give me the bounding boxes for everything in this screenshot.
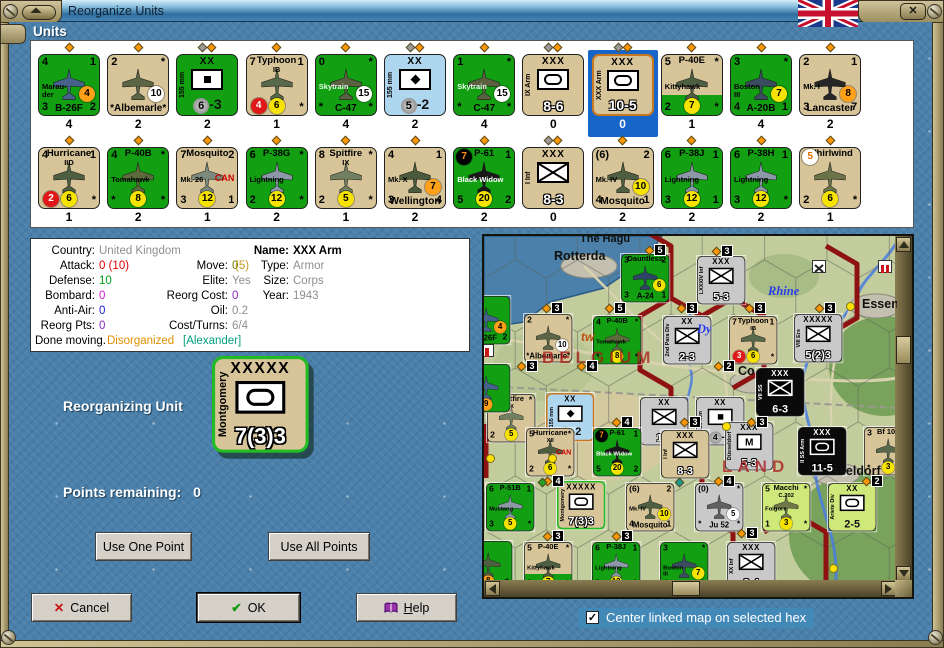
unit-counter-whirlwind[interactable]: 5Whirlwind62*: [799, 147, 861, 209]
name-value: XXX Arm: [293, 245, 342, 258]
unit-size-symbol: XXX: [523, 57, 583, 67]
unit-counter-typhoon[interactable]: 71TyphoonIB46*: [246, 54, 308, 116]
stat-top-right: *: [529, 396, 532, 405]
status-dots: [382, 137, 448, 144]
ok-label: OK: [248, 601, 266, 615]
unit-counter-p-38j[interactable]: 61P-38JLightning1231: [661, 147, 723, 209]
strength-circle: 10: [556, 339, 568, 351]
unit-nickname: Black Widow: [457, 176, 503, 184]
window-menu-button[interactable]: [22, 5, 56, 20]
unit-size-symbol: XX: [664, 318, 711, 326]
stat-bottom-left: 1: [765, 520, 770, 529]
unit-reorg-count: 1: [313, 210, 379, 224]
unit-reorg-count: 2: [659, 210, 725, 224]
units-list-panel: 41Marau- der43B-26F242*10*Albemarle*2155…: [30, 40, 914, 228]
unit-counter-p-51b[interactable]: 61P-51BMustang53*: [486, 483, 534, 531]
unit-size-symbol: XXX: [728, 544, 775, 552]
ok-button[interactable]: ✔ OK: [197, 593, 300, 622]
status-dots: [797, 137, 863, 144]
antiair-value: 0: [99, 305, 105, 318]
unit-reorg-count: 2: [174, 117, 240, 131]
stat-top-right: *: [369, 57, 373, 68]
strength-circle: 7: [684, 98, 700, 114]
stat-bottom-left: 3: [42, 102, 48, 113]
unit-stats: 6-3: [757, 402, 804, 414]
stat-bottom-left: 5: [596, 465, 601, 474]
unit-stats: 10-5: [594, 97, 652, 113]
antiair-label: Anti-Air:: [33, 305, 95, 318]
unit-counter-lancaster[interactable]: 21Mk. I83Lancaster7: [799, 54, 861, 116]
stat-top-right: 1: [769, 318, 774, 327]
stat-top-left: 3: [624, 256, 629, 265]
status-dots: [382, 44, 448, 51]
stat-bottom-right: 1: [228, 195, 234, 206]
unit-nickname: Marau- der: [42, 83, 67, 98]
strength-circle: 8: [840, 86, 856, 102]
name-label: Name:: [229, 245, 289, 258]
unit-model-name: C-47: [454, 103, 514, 114]
unit-stats: 5-2: [385, 96, 445, 114]
stat-bottom-right: 1: [782, 102, 788, 113]
unit-nickname: Tomahawk: [596, 339, 626, 345]
unit-nickname: Skytrain: [319, 83, 349, 91]
unit-reorg-count: 0: [520, 210, 586, 224]
resource-dot-icon: [548, 454, 557, 463]
unit-counter-p-40e[interactable]: 5*P-40EKittyhawk72*: [524, 542, 572, 582]
resource-dot-icon: [846, 302, 855, 311]
unit-reorg-count: 4: [36, 117, 102, 131]
stat-top-right: 1: [782, 150, 788, 161]
infantry-cross-icon: [653, 410, 675, 423]
size-value: Corps: [293, 275, 324, 288]
unit-reorg-count: 2: [382, 210, 448, 224]
type-label: Type:: [229, 260, 289, 273]
factory-icon: [878, 260, 892, 273]
stat-top-right: *: [804, 485, 807, 494]
stat-top-right: 1: [632, 544, 637, 553]
strength-circle: 12: [684, 191, 700, 207]
stat-top-right: 1: [526, 485, 531, 494]
use-one-point-button[interactable]: Use One Point: [95, 532, 192, 561]
scroll-left-button[interactable]: [485, 581, 500, 596]
strength-circle: 8: [130, 191, 146, 207]
stat-bottom-right: 2: [90, 102, 96, 113]
infantry-cross-icon: [710, 269, 732, 282]
use-all-points-button[interactable]: Use All Points: [268, 532, 370, 561]
unit-nickname: Lightning: [734, 176, 768, 184]
strength-circle: 6: [544, 462, 556, 474]
unit-reorg-count: 0: [590, 117, 656, 131]
armor-symbol-icon: [569, 493, 594, 509]
unit-nationality: CAN: [556, 449, 571, 456]
hex-supply-marker: 3: [678, 302, 698, 314]
stat-bottom-right: *: [784, 195, 788, 206]
stat-top-right: 2: [666, 485, 671, 494]
elite-label: Elite:: [146, 275, 228, 288]
stat-bottom-left: 4: [629, 520, 634, 529]
unit-details-panel: Country: United Kingdom Name: XXX Arm At…: [30, 238, 470, 352]
unit-counter-wellington[interactable]: 41Mk. X73Wellington4: [384, 147, 446, 209]
stat-top-left: 2: [111, 57, 117, 68]
cost-turns-value: 6/4: [232, 320, 248, 333]
status-dots: [590, 44, 656, 51]
status-dots: [313, 137, 379, 144]
map-viewport[interactable]: The HaguRotterdaRhineEssenDytwBELGIUMCoL…: [484, 236, 897, 582]
unit-size-symbol: XXXXX: [795, 316, 842, 324]
unit-size-symbol: XXXXX: [215, 362, 305, 378]
infantry-cross-icon: [740, 555, 762, 568]
stat-bottom-left: 3: [388, 195, 394, 206]
unit-counter-ii-ss-arm[interactable]: II SS ArmXXX11-5: [798, 427, 846, 475]
hex-supply-marker: 3: [816, 302, 836, 314]
cancel-button[interactable]: ✕ Cancel: [31, 593, 132, 622]
unit-counter-montgomery[interactable]: MontgomeryXXXXX7(3)3: [212, 356, 309, 453]
mine-icon: [812, 260, 826, 273]
status-dots: [728, 44, 794, 51]
unit-counter-mosquito[interactable]: (6)2Mk. IV104Mosquito1: [592, 147, 654, 209]
attack-value: 0 (10): [99, 260, 129, 273]
menu-triangle-icon: [30, 7, 41, 18]
cost-turns-label: Cost/Turns:: [146, 320, 228, 333]
scrollbar-corner: [895, 580, 912, 597]
unit-nickname: Lightning: [665, 176, 699, 184]
hex-supply-marker: 3: [738, 527, 758, 539]
stat-bottom-right: *: [369, 102, 373, 113]
unit-reorg-count: 2: [105, 210, 171, 224]
inf-symbol-icon: [537, 162, 569, 183]
strength-circle: 10: [658, 508, 670, 520]
unit-counter-p-38g[interactable]: 6*P-38GLightning122*: [246, 147, 308, 209]
armor-symbol-icon: [607, 70, 639, 91]
inf-symbol-icon: [652, 409, 677, 425]
armor-symbol-icon: [235, 381, 285, 414]
unit-counter-mosquito[interactable]: 72MosquitoMk. 26CAN1231: [176, 147, 238, 209]
stat-top-right: 1: [436, 150, 442, 161]
unit-nickname: Boston III: [734, 83, 760, 98]
stat-bottom-right: *: [635, 353, 638, 362]
stat-top-left: 4: [596, 318, 601, 327]
strength-circle: 5: [727, 508, 739, 520]
unit-size-symbol: XXX: [698, 258, 745, 266]
unit-counter-bf-109[interactable]: 3Bf 1093*: [864, 427, 897, 475]
unit-counter-155-mm[interactable]: 155 mmXX6-3: [176, 54, 238, 116]
unit-nickname: Mk. I: [803, 83, 820, 91]
stat-bottom-right: *: [92, 195, 96, 206]
reorganizing-unit-label: Reorganizing Unit: [63, 398, 183, 414]
help-label: Help: [404, 601, 430, 615]
stat-top-left: 2: [527, 316, 532, 325]
stat-bottom-left: *: [319, 102, 323, 113]
unit-counter-a-20b[interactable]: 3*Boston III74A-20B1: [730, 54, 792, 116]
stat-top-right: *: [566, 544, 569, 553]
unit-size-symbol: XX: [697, 399, 744, 407]
unit-counter-b-26f[interactable]: 41Marau- der43B-26F2: [38, 54, 100, 116]
stat-top-right: 2: [228, 150, 234, 161]
unit-stats: 6-3: [177, 96, 237, 114]
unit-stats: 11-5: [799, 461, 846, 473]
stat-bottom-right: *: [369, 195, 373, 206]
unit-counter-p-61[interactable]: 71P-61Black Widow2052: [593, 428, 641, 476]
unit-counter-p-61[interactable]: 71P-61Black Widow2052: [453, 147, 515, 209]
unit-stats: 2-3: [664, 350, 711, 362]
unit-counter-ju-52[interactable]: (0)*5*Ju 52*: [695, 483, 743, 531]
unit-counter-unit[interactable]: 86: [484, 541, 512, 582]
stat-top-left: 7: [732, 318, 737, 327]
stat-top-left: 6: [595, 544, 600, 553]
close-button[interactable]: ✕: [900, 3, 926, 20]
unit-nickname: Mk. IV: [596, 176, 618, 184]
stat-top-right: 2: [643, 150, 649, 161]
unit-reorg-count: 2: [105, 117, 171, 131]
stat-top-left: 1: [457, 57, 463, 68]
strength-circle: 20: [476, 191, 492, 207]
bombard-value: 0: [99, 290, 105, 303]
unit-counter-hurricane[interactable]: 5*HurricaneXIICAN62*: [526, 428, 574, 476]
unit-counter-macchi[interactable]: 5*MacchiC.202Folgore31*: [762, 483, 810, 531]
status-dots: [451, 137, 517, 144]
cancel-label: Cancel: [70, 601, 109, 615]
hex-supply-marker: 2: [715, 360, 735, 372]
unit-reorg-count: 1: [659, 117, 725, 131]
strength-circle: 15: [356, 86, 372, 102]
unit-counter-unit[interactable]: 9: [484, 364, 510, 412]
stat-bottom-left: 2: [665, 102, 671, 113]
armor-symbol-icon: [840, 495, 865, 511]
stat-top-left: 6: [250, 150, 256, 161]
stat-bottom-right: *: [299, 102, 303, 113]
unit-counter-p-40b[interactable]: 4*P-40BTomahawk8**: [107, 147, 169, 209]
stat-top-left: (0): [698, 485, 708, 494]
unit-counter-lxxxiv-inf[interactable]: LXXXIV InfXXX5-3: [697, 256, 745, 304]
unit-counter-b-26f[interactable]: 43B-26F2: [484, 296, 510, 344]
unit-counter-d-sseldorf[interactable]: DüsseldorfXXXM5-3: [725, 422, 773, 470]
horizontal-scroll-thumb[interactable]: [672, 581, 700, 596]
reorg-pts-value: 0: [99, 320, 105, 333]
strength-circle: 10: [148, 86, 164, 102]
screw-icon: [3, 4, 18, 19]
strength-circle: 9: [484, 398, 492, 410]
unit-reorg-count: 2: [797, 117, 863, 131]
unit-size-symbol: XX: [641, 399, 688, 407]
country-value: United Kingdom: [99, 245, 181, 258]
unit-size-symbol: XXX: [523, 150, 583, 160]
help-book-icon: [384, 602, 398, 614]
unit-counter-p-40e[interactable]: 5*P-40EKittyhawk72*: [661, 54, 723, 116]
hex-supply-marker: 3: [543, 302, 563, 314]
unit-counter-2nd-para-div[interactable]: 2nd Para DivXX2-3: [663, 316, 711, 364]
art-symbol-icon: [191, 69, 223, 90]
stat-top-right: *: [635, 318, 638, 327]
strength-circle: 6: [269, 98, 285, 114]
stat-top-right: 1: [713, 150, 719, 161]
stat-top-right: *: [715, 57, 719, 68]
stat-top-right: 1: [505, 150, 511, 161]
stat-bottom-right: *: [528, 520, 531, 529]
scroll-down-button[interactable]: [896, 566, 911, 581]
vertical-scroll-thumb[interactable]: [896, 336, 911, 364]
scroll-right-button[interactable]: [881, 581, 896, 596]
stat-top-right: 1: [297, 57, 303, 68]
stat-top-left: 6: [665, 150, 671, 161]
map-horizontal-scrollbar[interactable]: [484, 580, 899, 597]
strength-circle: 4: [251, 98, 267, 114]
unit-counter-i-inf[interactable]: I InfXXX8-3: [522, 147, 584, 209]
stat-top-left: 6: [734, 150, 740, 161]
stat-top-right: *: [784, 57, 788, 68]
unit-counter-hurricane[interactable]: 41HurricaneIID26*: [38, 147, 100, 209]
screw-icon: [928, 630, 943, 645]
unit-counter--albemarle-[interactable]: 2*10*Albemarle*: [524, 314, 572, 362]
strength-circle: 15: [494, 86, 510, 102]
stat-bottom-left: 2: [319, 195, 325, 206]
unit-reorg-count: 1: [244, 117, 310, 131]
status-dots: [520, 44, 586, 51]
stat-bottom-left: *: [457, 102, 461, 113]
armor-symbol-icon: [537, 69, 569, 90]
stat-bottom-right: 4: [436, 195, 442, 206]
unit-counter-155-mm[interactable]: 155 mmXX5-2: [384, 54, 446, 116]
unit-counter-ix-arm[interactable]: IX ArmXXX8-6: [522, 54, 584, 116]
unit-nickname: Folgore: [765, 506, 786, 512]
help-button[interactable]: Help: [356, 593, 457, 622]
reorg-pts-label: Reorg Pts:: [33, 320, 95, 333]
unit-counter-c-47[interactable]: 0*Skytrain15*C-47*: [315, 54, 377, 116]
linked-map-panel: The HaguRotterdaRhineEssenDytwBELGIUMCoL…: [482, 234, 914, 599]
unit-counter-p-38h[interactable]: 61P-38HLightning123*: [730, 147, 792, 209]
stat-top-right: *: [702, 544, 705, 553]
status-diamond-icon: [676, 479, 683, 486]
stat-top-left: 4: [42, 57, 48, 68]
stat-bottom-right: *: [299, 195, 303, 206]
stat-bottom-right: *: [507, 102, 511, 113]
unit-counter-spitfire[interactable]: 8*SpitfireIX52*: [315, 147, 377, 209]
stat-top-right: 1: [90, 150, 96, 161]
unit-nickname: Mk. IV: [629, 506, 646, 512]
unit-counter-dauntless[interactable]: 32Dauntless63A-241: [621, 254, 669, 302]
frame-tab: [0, 24, 26, 44]
defense-label: Defense:: [33, 275, 95, 288]
unit-counter-montgomery[interactable]: MontgomeryXXXXX7(3)3: [557, 481, 605, 529]
status-dots: [105, 137, 171, 144]
unit-nickname: Lightning: [250, 176, 284, 184]
stat-top-left: (6): [596, 150, 609, 161]
use-all-points-label: Use All Points: [280, 540, 357, 554]
unit-counter-xx-inf[interactable]: XX InfXXX8-4: [727, 542, 775, 582]
hex-supply-marker: 4: [613, 416, 633, 428]
stat-top-left: 5: [529, 430, 534, 439]
status-dots: [797, 44, 863, 51]
checkbox-box[interactable]: ✓: [586, 611, 599, 624]
hex-supply-marker: 3: [544, 530, 564, 542]
infantry-cross-icon: [539, 164, 567, 181]
unit-stats: 8-6: [523, 98, 583, 114]
stat-top-left: 4: [111, 150, 117, 161]
unit-counter-typhoon[interactable]: 71TyphoonIB36*: [729, 316, 777, 364]
unit-reorg-count: 2: [382, 117, 448, 131]
unit-nickname: Kittyhawk: [665, 83, 700, 91]
unit-counter-p-40b[interactable]: 4*P-40BTomahawk8**: [593, 316, 641, 364]
stat-top-left: 8: [319, 150, 325, 161]
inf-symbol-icon: [675, 328, 700, 344]
strength-circle: 12: [753, 191, 769, 207]
stat-bottom-right: 2: [505, 195, 511, 206]
unit-counter-viii-ers[interactable]: VIII ErsXXXXX5(2)3: [794, 314, 842, 362]
unit-counter-vii-ss[interactable]: VII SSXXX6-3: [756, 368, 804, 416]
scroll-up-button[interactable]: [896, 237, 911, 252]
stat-top-right: *: [568, 430, 571, 439]
frame-left: [0, 22, 9, 648]
oil-label: Oil:: [146, 305, 228, 318]
unit-size-symbol: XX: [385, 57, 445, 67]
unit-stats: 8-3: [523, 191, 583, 207]
status-done-moving: Done moving.: [35, 335, 106, 348]
unit-counter-a-20b[interactable]: 3*Boston III74A-20B1: [660, 542, 708, 582]
strength-circle: 3: [882, 461, 894, 473]
strength-circle: 12: [199, 191, 215, 207]
stat-top-right: *: [566, 316, 569, 325]
reorg-cost-label: Reorg Cost:: [146, 290, 228, 303]
unit-counter-mosquito[interactable]: (6)2Mk. IV104Mosquito1: [626, 483, 674, 531]
stat-top-left: 5: [665, 57, 671, 68]
unit-reorg-count: 4: [313, 117, 379, 131]
move-label: Move:: [146, 260, 228, 273]
oil-value: 0.2: [232, 305, 248, 318]
aircraft-silhouette-icon: [812, 159, 848, 195]
frame-right: [932, 22, 944, 648]
unit-counter-ariete-div[interactable]: Ariete DivXX2-5: [828, 483, 876, 531]
unit-size-symbol: XXXXX: [559, 484, 604, 492]
aircraft-silhouette-icon: [874, 437, 897, 465]
unit-counter-i-inf[interactable]: I InfXXX8-3: [661, 430, 709, 478]
hex-supply-marker: 5: [606, 302, 626, 314]
stat-bottom-right: 1: [661, 291, 666, 300]
unit-counter-xxx-arm[interactable]: XXX ArmXXX10-5: [592, 54, 654, 116]
status-dots: [520, 137, 586, 144]
stat-bottom-left: 2: [250, 195, 256, 206]
stat-bottom-left: 3: [803, 102, 809, 113]
center-map-checkbox[interactable]: ✓ Center linked map on selected hex: [578, 608, 814, 628]
armor-symbol-icon: [810, 439, 835, 455]
hex-supply-marker: 4: [544, 475, 564, 487]
unit-counter-c-47[interactable]: 1*Skytrain15*C-47*: [453, 54, 515, 116]
unit-counter-p-38j[interactable]: 61P-38JLightning1231: [592, 542, 640, 582]
screw-icon: [1, 630, 16, 645]
stat-bottom-right: *: [853, 195, 857, 206]
unit-model-name: C-47: [316, 103, 376, 114]
stat-bottom-right: *: [161, 195, 165, 206]
unit-stats: 7(3)3: [215, 423, 305, 448]
unit-stats: 5(2)3: [795, 348, 842, 360]
reorganize-units-window: Reorganize Units ✕ Units 41Marau- der43B…: [0, 0, 944, 648]
hex-supply-marker: 3: [748, 416, 768, 428]
hex-supply-marker: 3: [746, 302, 766, 314]
stat-bottom-left: 3: [489, 520, 494, 529]
unit-stats: 2-5: [829, 517, 876, 529]
strength-circle: 20: [611, 462, 623, 474]
strength-circle: 7: [692, 567, 704, 579]
country-label: Country:: [33, 245, 95, 258]
strength-circle: 4: [494, 321, 506, 333]
resource-dot-icon: [722, 422, 731, 431]
map-vertical-scrollbar[interactable]: [895, 236, 912, 584]
unit-nickname: Mustang: [489, 506, 513, 512]
status-diamond-icon: [539, 479, 546, 486]
unit-nickname: Mk. 26: [180, 176, 203, 184]
stat-top-left: 5: [765, 485, 770, 494]
unit-model-name: Ju 52: [696, 521, 743, 530]
stat-circle: 7: [595, 430, 607, 442]
unit-counter--albemarle-[interactable]: 2*10*Albemarle*: [107, 54, 169, 116]
